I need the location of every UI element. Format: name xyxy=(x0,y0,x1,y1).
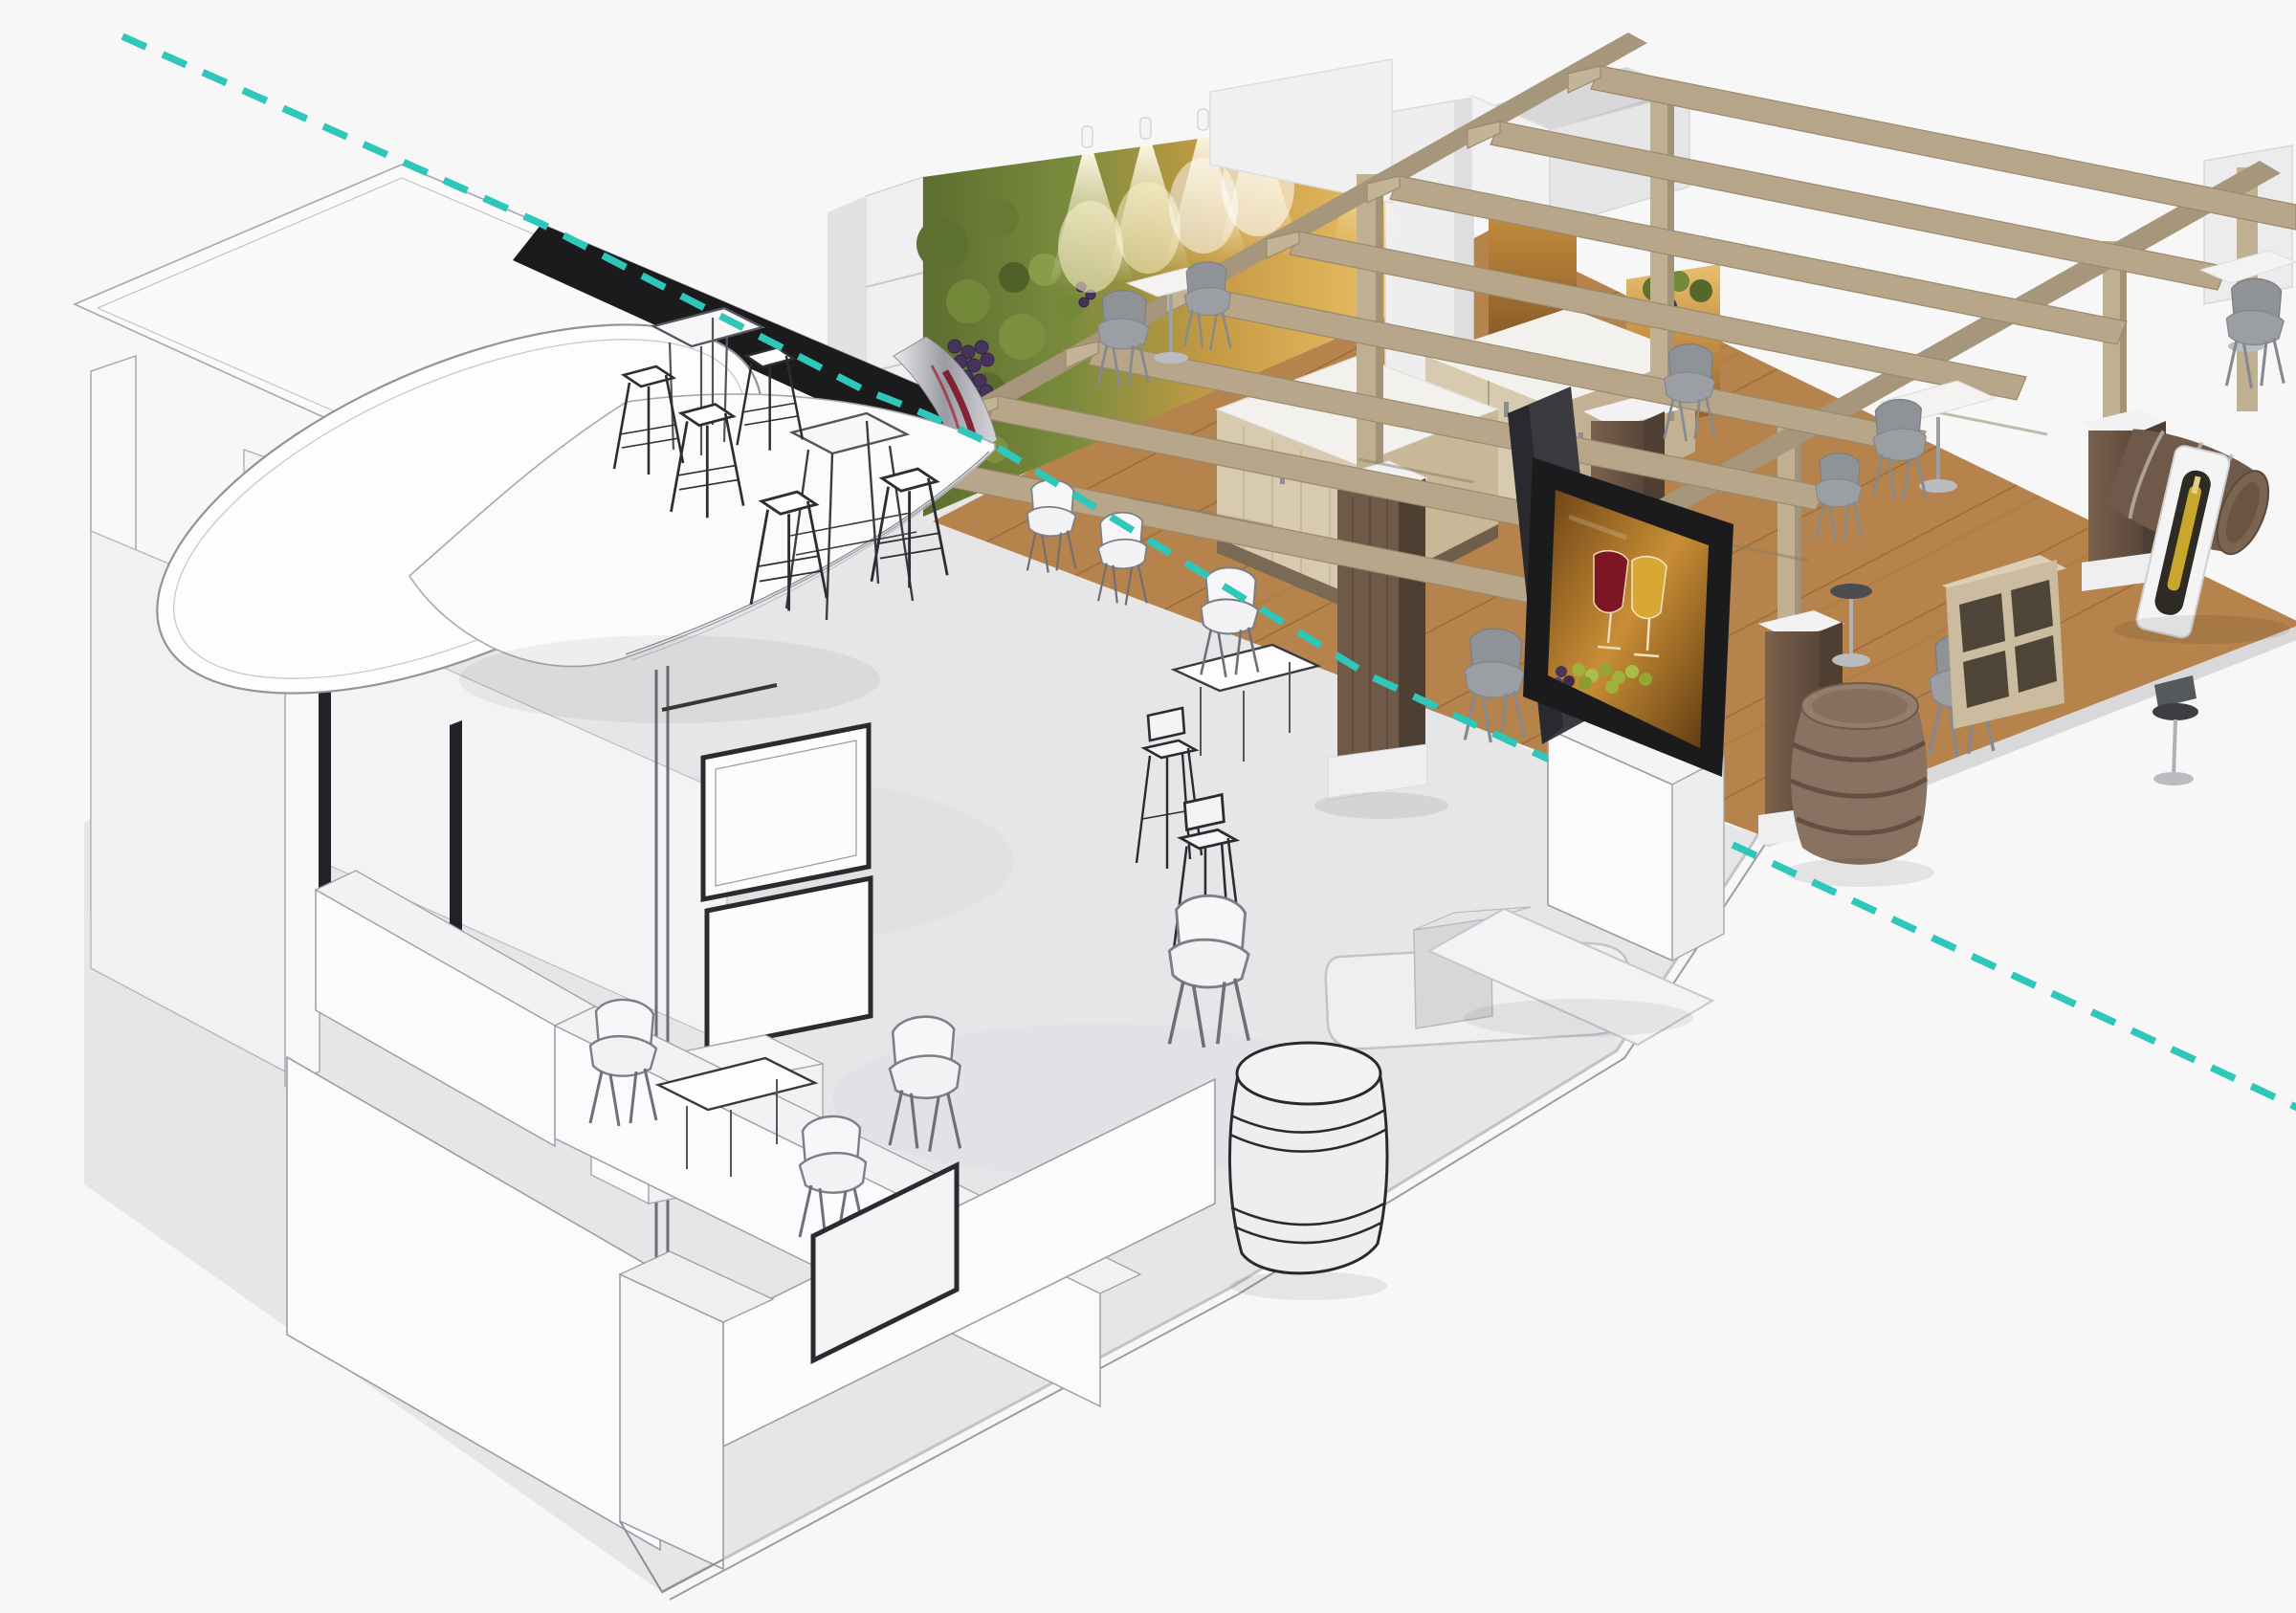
booth-visualization-stage xyxy=(0,0,2296,1613)
booth-render-illustration xyxy=(0,0,2296,1613)
cube-shelf xyxy=(1942,555,2066,729)
